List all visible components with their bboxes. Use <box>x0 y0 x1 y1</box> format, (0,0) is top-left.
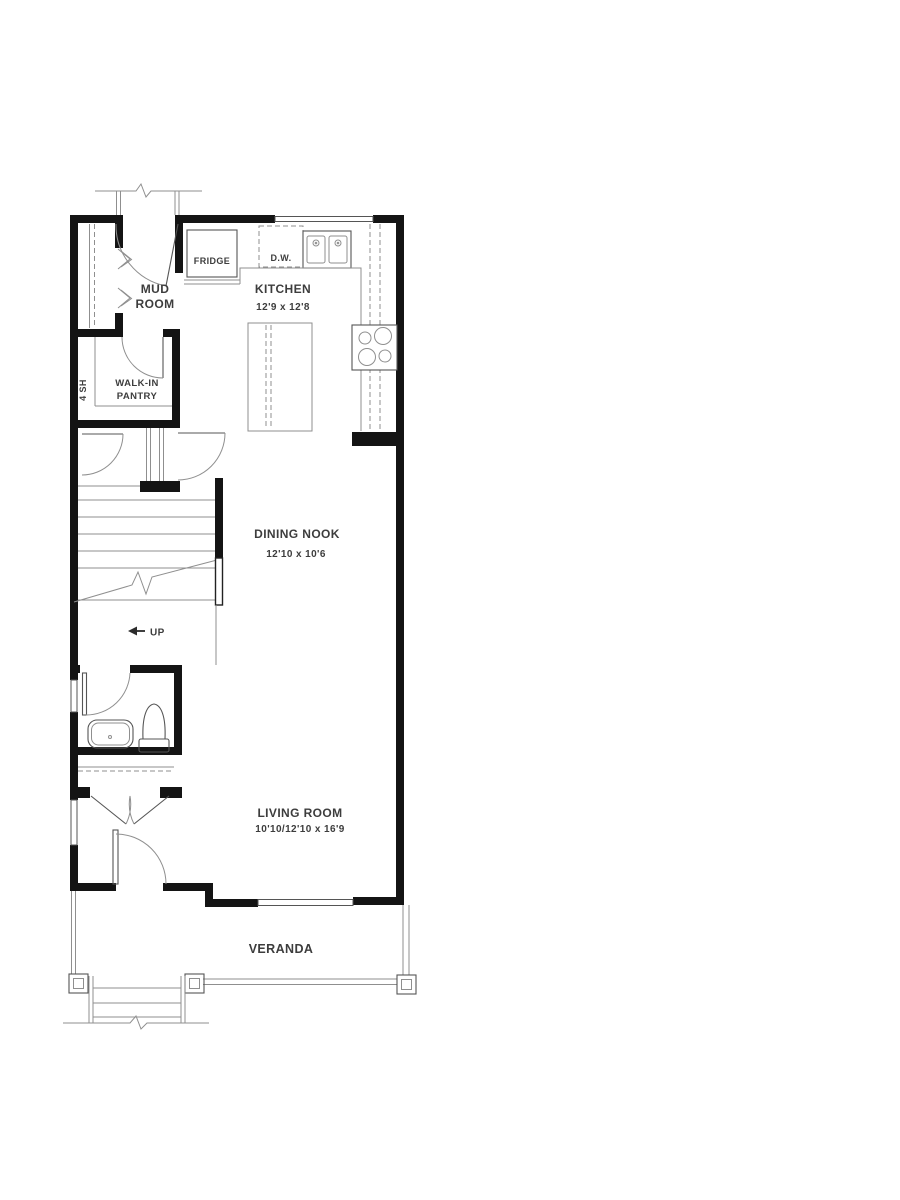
cooktop <box>352 325 397 370</box>
doors <box>82 224 225 884</box>
up-direction: UP <box>128 627 165 639</box>
veranda-post <box>185 974 204 993</box>
floor-plan-page: UP <box>0 0 900 1200</box>
pantry-label-line2: PANTRY <box>117 391 158 402</box>
veranda-steps <box>63 976 209 1029</box>
floor-plan-canvas: UP <box>0 0 900 1200</box>
bathroom-fixtures <box>88 704 169 752</box>
dishwasher-label: D.W. <box>270 253 291 263</box>
kitchen-island <box>248 323 312 431</box>
veranda-structure <box>63 891 416 1029</box>
stairs: UP <box>74 428 223 665</box>
stair-break-line <box>74 560 217 602</box>
veranda-post <box>69 974 88 993</box>
living-room-side-window <box>71 800 77 845</box>
mud-room-label-line2: ROOM <box>136 297 175 311</box>
bathroom-door <box>83 673 131 715</box>
dining-nook-label: DINING NOOK <box>254 527 340 541</box>
pantry-door <box>122 337 163 378</box>
pantry-label-line1: WALK-IN <box>115 378 158 389</box>
veranda-label: VERANDA <box>249 942 314 956</box>
toilet <box>139 704 169 752</box>
living-room-front-window <box>258 900 353 906</box>
living-room-label: LIVING ROOM <box>257 806 342 820</box>
bathroom-window <box>71 680 77 712</box>
kitchen-sink <box>303 231 351 268</box>
kitchen-window <box>275 217 373 222</box>
ground-break-line <box>63 1016 209 1029</box>
stairs-up-label: UP <box>150 628 165 639</box>
kitchen-dims: 12'9 x 12'8 <box>256 302 310 313</box>
hall-door-left <box>82 434 123 475</box>
front-door <box>113 830 166 884</box>
fridge-label: FRIDGE <box>194 256 230 266</box>
bathroom-vanity-sink <box>88 720 133 748</box>
hall-door-right <box>178 433 225 480</box>
stair-railing <box>216 558 223 605</box>
pantry-shelf-label: 4 SH <box>78 379 88 401</box>
veranda-post <box>397 975 416 994</box>
rear-porch <box>95 184 202 215</box>
mud-room-closet <box>90 224 132 328</box>
up-arrow-icon <box>128 627 137 636</box>
fridge-outline <box>187 230 237 277</box>
closet-double-doors <box>91 796 169 824</box>
mud-room-label-line1: MUD <box>141 282 170 296</box>
kitchen-label: KITCHEN <box>255 282 311 296</box>
dining-nook-dims: 12'10 x 10'6 <box>266 549 326 560</box>
closet-shelf <box>78 767 174 771</box>
interior-walls <box>70 215 404 798</box>
living-room-dims: 10'10/12'10 x 16'9 <box>255 824 344 835</box>
